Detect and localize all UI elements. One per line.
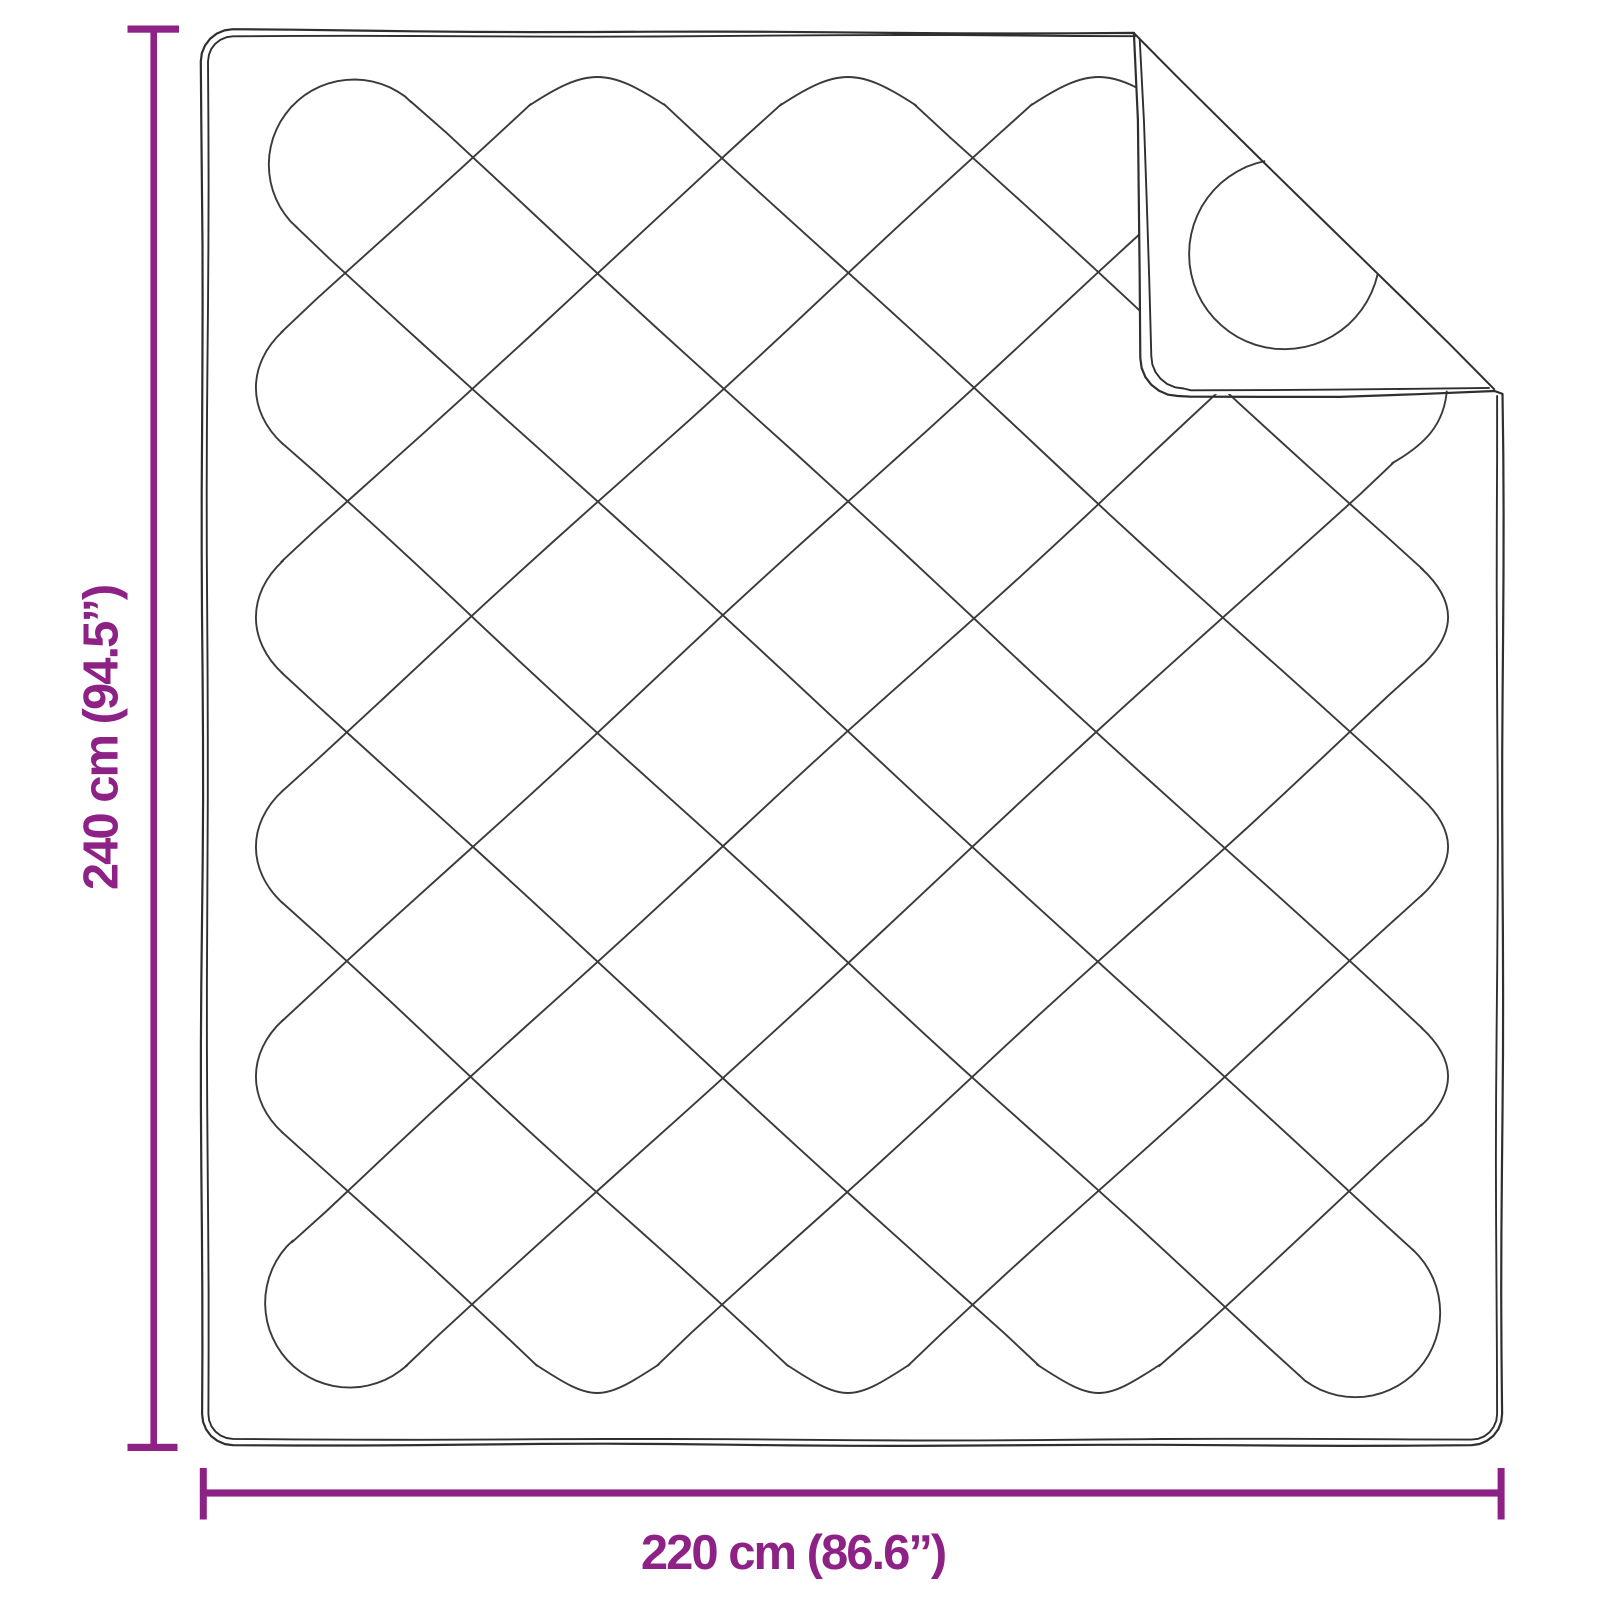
svg-text:220 cm (86.6”): 220 cm (86.6”) xyxy=(641,1526,945,1580)
svg-text:240 cm (94.5”): 240 cm (94.5”) xyxy=(75,586,129,890)
